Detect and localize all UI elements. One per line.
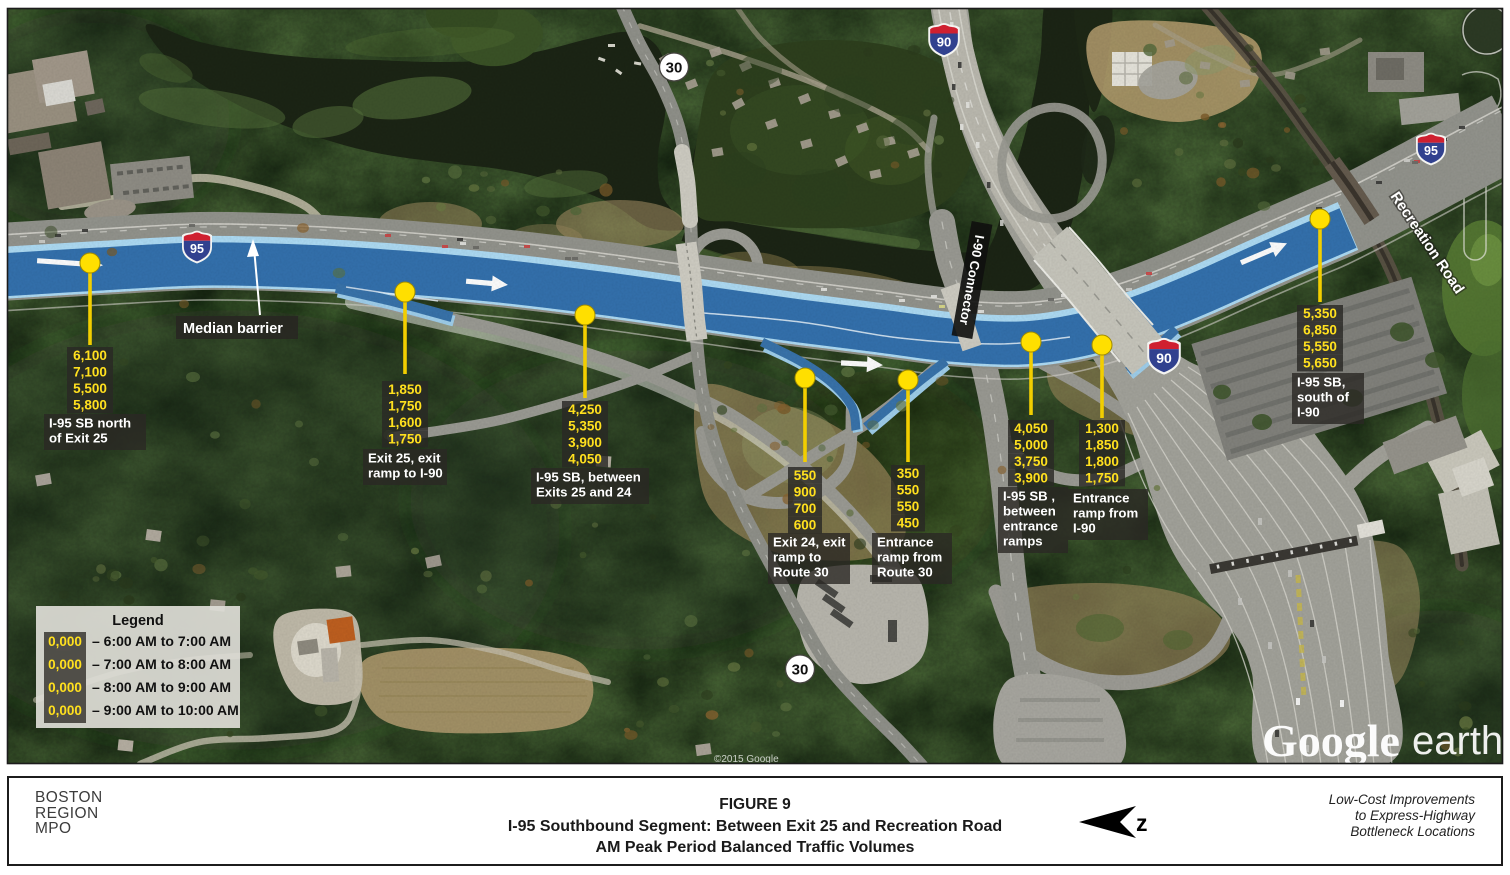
svg-text:5,800: 5,800: [73, 398, 107, 413]
svg-text:south of: south of: [1297, 390, 1350, 405]
svg-text:Route 30: Route 30: [773, 565, 829, 580]
svg-text:1,850: 1,850: [388, 382, 422, 397]
svg-text:Exit 25, exit: Exit 25, exit: [368, 451, 441, 466]
svg-text:I-90: I-90: [1073, 521, 1096, 536]
svg-text:550: 550: [897, 483, 920, 498]
svg-text:90: 90: [1156, 350, 1172, 366]
svg-text:– 6:00 AM to 7:00 AM: – 6:00 AM to 7:00 AM: [92, 633, 231, 649]
svg-text:I-90: I-90: [1297, 405, 1320, 420]
svg-text:ramp from: ramp from: [877, 550, 942, 565]
svg-text:1,750: 1,750: [388, 432, 422, 447]
svg-text:5,650: 5,650: [1303, 356, 1337, 371]
svg-text:0,000: 0,000: [48, 703, 82, 718]
svg-text:Median barrier: Median barrier: [183, 321, 283, 337]
svg-text:4,250: 4,250: [568, 402, 602, 417]
svg-text:z: z: [1136, 810, 1148, 836]
svg-text:5,550: 5,550: [1303, 339, 1337, 354]
svg-text:450: 450: [897, 516, 920, 531]
svg-text:ramp to I-90: ramp to I-90: [368, 466, 443, 481]
svg-text:700: 700: [794, 501, 817, 516]
svg-text:I-95 SB ,: I-95 SB ,: [1003, 489, 1055, 504]
svg-text:earth: earth: [1412, 719, 1503, 763]
svg-text:0,000: 0,000: [48, 657, 82, 672]
svg-text:ramp from: ramp from: [1073, 506, 1138, 521]
svg-text:of Exit 25: of Exit 25: [49, 431, 108, 446]
svg-text:– 7:00 AM to 8:00 AM: – 7:00 AM to 8:00 AM: [92, 656, 231, 672]
svg-text:entrance: entrance: [1003, 519, 1058, 534]
svg-text:3,750: 3,750: [1014, 454, 1048, 469]
svg-text:1,750: 1,750: [1085, 471, 1119, 486]
svg-text:900: 900: [794, 485, 817, 500]
svg-text:1,750: 1,750: [388, 399, 422, 414]
svg-text:Entrance: Entrance: [877, 535, 933, 550]
svg-text:6,850: 6,850: [1303, 323, 1337, 338]
svg-text:6,100: 6,100: [73, 348, 107, 363]
svg-text:550: 550: [897, 499, 920, 514]
svg-text:5,350: 5,350: [1303, 306, 1337, 321]
svg-text:4,050: 4,050: [568, 452, 602, 467]
svg-text:I-95 SB north: I-95 SB north: [49, 416, 131, 431]
svg-text:– 8:00 AM to 9:00 AM: – 8:00 AM to 9:00 AM: [92, 679, 231, 695]
svg-text:I-95 SB,: I-95 SB,: [1297, 375, 1345, 390]
svg-text:1,600: 1,600: [388, 415, 422, 430]
svg-text:I-95 SB, between: I-95 SB, between: [536, 470, 641, 485]
svg-text:95: 95: [190, 242, 204, 256]
svg-text:7,100: 7,100: [73, 365, 107, 380]
svg-text:30: 30: [666, 60, 683, 77]
svg-text:Entrance: Entrance: [1073, 491, 1129, 506]
svg-text:ramp to: ramp to: [773, 550, 821, 565]
svg-text:1,850: 1,850: [1085, 438, 1119, 453]
svg-text:between: between: [1003, 504, 1056, 519]
svg-text:350: 350: [897, 466, 920, 481]
svg-text:4,050: 4,050: [1014, 421, 1048, 436]
svg-text:– 9:00 AM to 10:00 AM: – 9:00 AM to 10:00 AM: [92, 702, 239, 718]
svg-text:ramps: ramps: [1003, 534, 1043, 549]
svg-text:90: 90: [937, 35, 952, 50]
svg-text:0,000: 0,000: [48, 680, 82, 695]
svg-text:550: 550: [794, 468, 817, 483]
svg-text:1,300: 1,300: [1085, 421, 1119, 436]
svg-text:Exit 24, exit: Exit 24, exit: [773, 535, 846, 550]
svg-text:600: 600: [794, 518, 817, 533]
svg-text:Google: Google: [1262, 715, 1400, 766]
svg-text:3,900: 3,900: [1014, 471, 1048, 486]
svg-text:Exits 25 and 24: Exits 25 and 24: [536, 485, 632, 500]
svg-text:3,900: 3,900: [568, 435, 602, 450]
svg-text:1,800: 1,800: [1085, 454, 1119, 469]
svg-text:5,350: 5,350: [568, 419, 602, 434]
svg-text:95: 95: [1424, 144, 1438, 158]
svg-text:Legend: Legend: [112, 613, 164, 629]
svg-text:30: 30: [792, 662, 809, 679]
svg-text:0,000: 0,000: [48, 634, 82, 649]
svg-text:5,500: 5,500: [73, 381, 107, 396]
svg-text:Route 30: Route 30: [877, 565, 933, 580]
svg-text:5,000: 5,000: [1014, 438, 1048, 453]
